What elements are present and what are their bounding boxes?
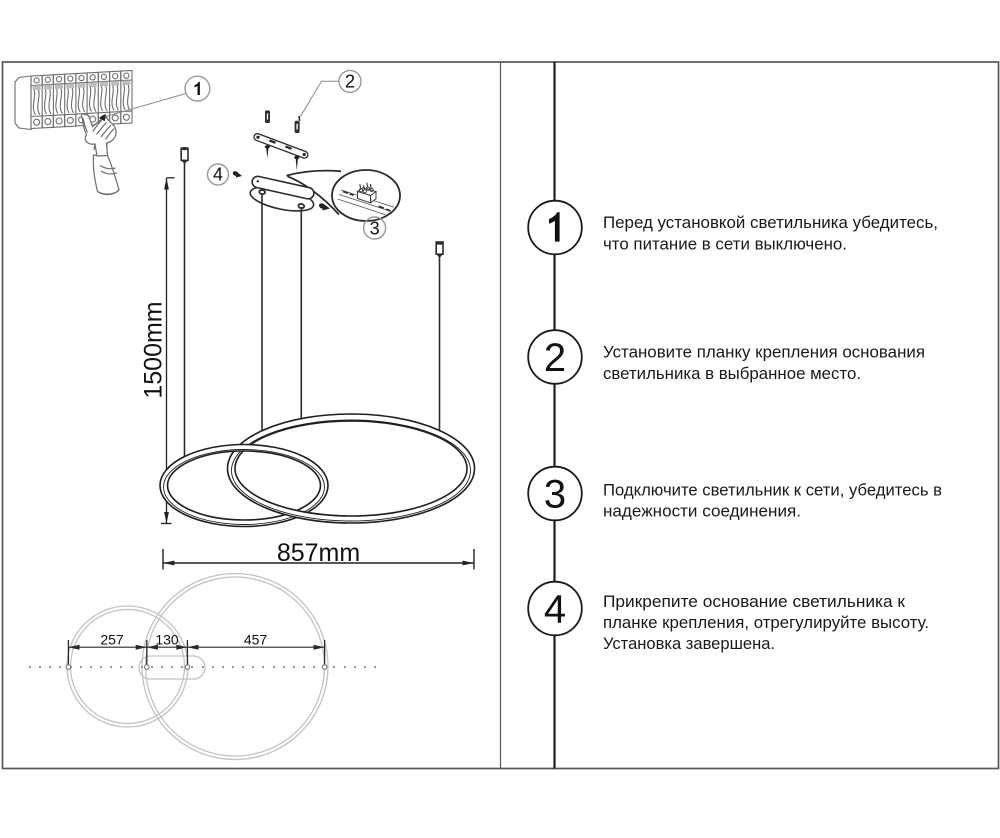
svg-text:Установите планку крепления ос: Установите планку крепления основания xyxy=(603,343,925,362)
svg-text:257: 257 xyxy=(100,632,124,648)
svg-text:130: 130 xyxy=(155,632,179,648)
svg-text:4: 4 xyxy=(544,588,566,632)
svg-text:857mm: 857mm xyxy=(277,539,360,567)
svg-text:Установка завершена.: Установка завершена. xyxy=(603,634,775,653)
svg-text:надежности соединения.: надежности соединения. xyxy=(603,502,801,521)
svg-text:457: 457 xyxy=(244,632,268,648)
svg-text:светильника в выбранное место.: светильника в выбранное место. xyxy=(603,364,861,383)
svg-text:Подключите светильник к сети,: Подключите светильник к сети, убедитесь … xyxy=(603,481,942,500)
svg-text:2: 2 xyxy=(345,72,355,92)
svg-text:что питание в сети выключено.: что питание в сети выключено. xyxy=(603,235,847,254)
svg-text:Прикрепите основание светильни: Прикрепите основание светильника к xyxy=(603,592,906,611)
svg-text:Перед установкой светильника у: Перед установкой светильника убедитесь, xyxy=(603,213,938,232)
svg-text:2: 2 xyxy=(544,336,566,380)
svg-text:1500mm: 1500mm xyxy=(140,301,168,398)
svg-text:3: 3 xyxy=(370,218,380,238)
svg-text:4: 4 xyxy=(213,165,223,185)
svg-text:3: 3 xyxy=(544,473,566,517)
svg-text:планке крепления, отрегулируйт: планке крепления, отрегулируйте высоту. xyxy=(603,613,929,632)
